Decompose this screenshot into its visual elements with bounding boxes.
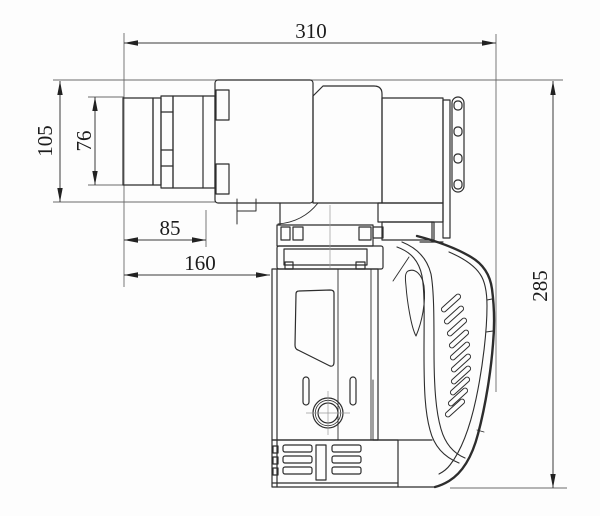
dimension-label-overall-length: 310	[295, 19, 327, 43]
dimension-label-overall-height: 285	[528, 270, 552, 302]
dimension-label-head-height: 105	[33, 125, 57, 157]
torque-wrench-drawing: 310 105 76 85 160 285	[0, 0, 600, 516]
handle	[397, 236, 494, 487]
mid-housing	[313, 86, 382, 203]
main-body	[272, 269, 378, 487]
dimension-label-drive-height: 76	[72, 131, 96, 152]
motor-housing	[378, 98, 450, 242]
center-lines	[306, 205, 350, 435]
gearbox-housing	[215, 80, 313, 203]
base-section	[272, 440, 436, 487]
technical-drawing-canvas: 310 105 76 85 160 285	[0, 0, 600, 516]
rear-vent-strip	[452, 97, 464, 192]
grip-ribs	[440, 293, 471, 418]
display-panel	[295, 290, 334, 366]
square-drive-section	[123, 96, 215, 188]
dimension-label-front-assembly: 160	[184, 251, 216, 275]
dimension-label-front-section: 85	[160, 216, 181, 240]
neck-junction	[237, 199, 383, 269]
extension-lines	[53, 33, 567, 488]
body-fasteners	[303, 377, 356, 428]
